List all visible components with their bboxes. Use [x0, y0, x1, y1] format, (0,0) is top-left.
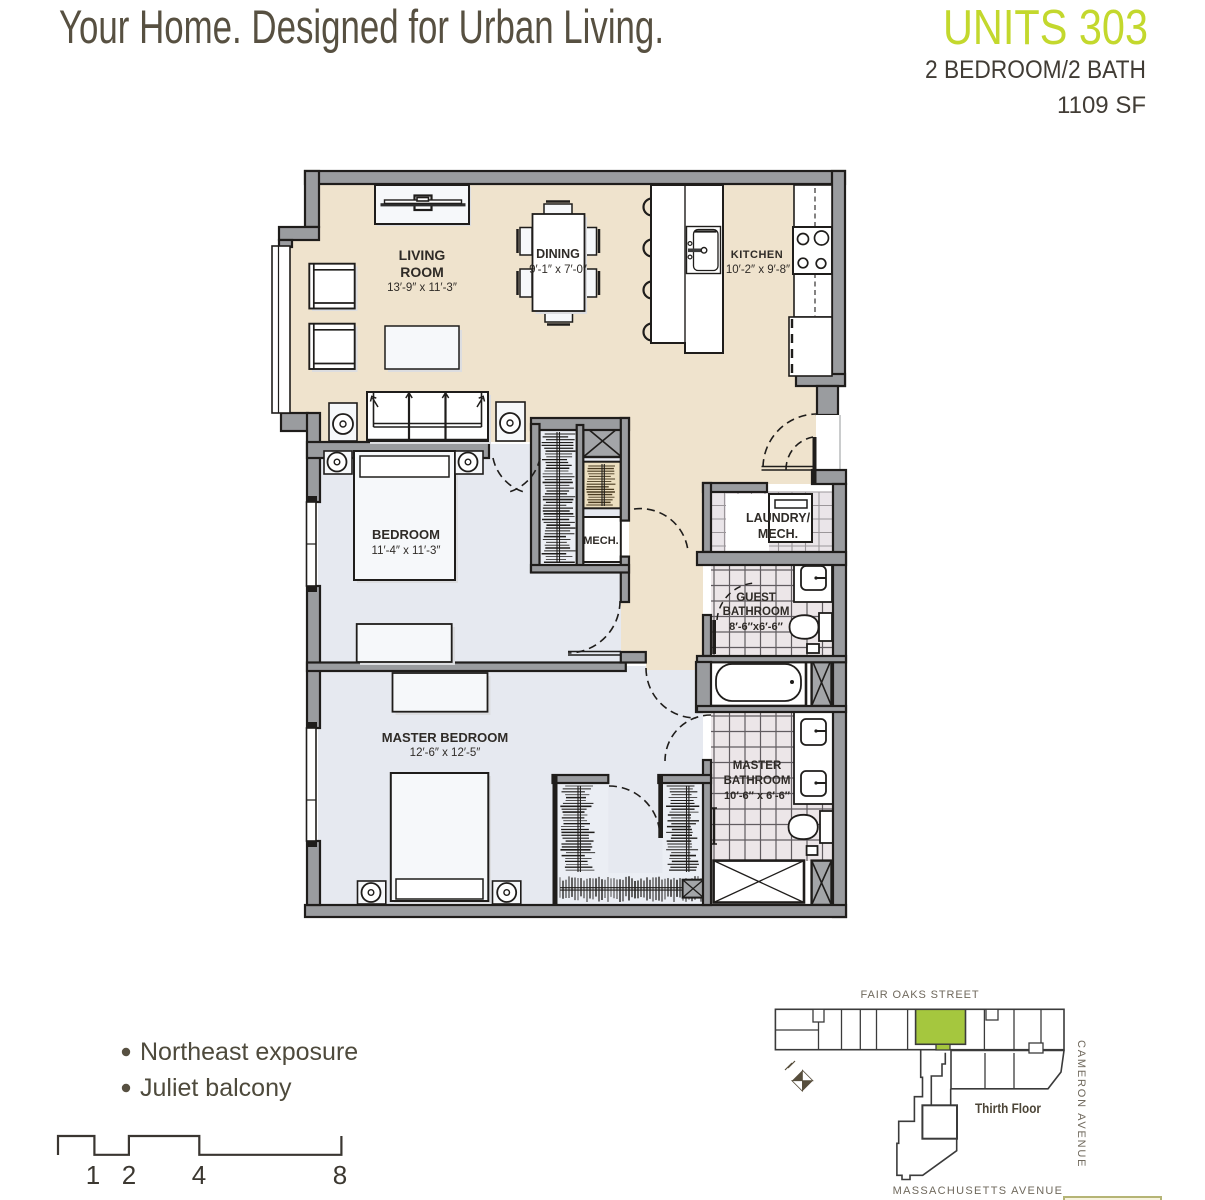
svg-text:12′-6″ x 12′-5″: 12′-6″ x 12′-5″: [410, 747, 481, 759]
svg-text:10′-6″ x 6′-6″: 10′-6″ x 6′-6″: [724, 790, 791, 802]
svg-text:MASTER: MASTER: [733, 760, 782, 772]
svg-text:8′-6″x6′-6″: 8′-6″x6′-6″: [729, 621, 783, 633]
svg-text:10′-2″ x 9′-8″: 10′-2″ x 9′-8″: [726, 264, 790, 276]
svg-text:Juliet balcony: Juliet balcony: [140, 1074, 292, 1102]
svg-text:LIVING: LIVING: [399, 247, 446, 263]
svg-text:BATHROOM: BATHROOM: [723, 606, 790, 618]
svg-text:MASTER BEDROOM: MASTER BEDROOM: [382, 730, 508, 745]
svg-text:BEDROOM: BEDROOM: [372, 527, 440, 542]
svg-text:MECH.: MECH.: [758, 527, 798, 541]
svg-text:MECH.: MECH.: [583, 535, 618, 547]
svg-text:FAIR OAKS STREET: FAIR OAKS STREET: [861, 989, 980, 1001]
svg-text:CAMERON AVENUE: CAMERON AVENUE: [1075, 1040, 1087, 1168]
svg-text:BATHROOM: BATHROOM: [724, 775, 791, 787]
svg-text:1109 SF: 1109 SF: [1057, 92, 1146, 119]
svg-text:DINING: DINING: [536, 247, 580, 261]
svg-text:ROOM: ROOM: [400, 264, 444, 280]
svg-text:Thirth Floor: Thirth Floor: [975, 1101, 1042, 1116]
svg-text:LAUNDRY/: LAUNDRY/: [746, 511, 811, 525]
svg-text:1: 1: [86, 1160, 100, 1190]
svg-text:4: 4: [192, 1160, 206, 1190]
svg-text:2 BEDROOM/2 BATH: 2 BEDROOM/2 BATH: [925, 56, 1146, 84]
svg-text:KITCHEN: KITCHEN: [731, 249, 783, 261]
svg-text:8: 8: [333, 1160, 347, 1190]
svg-text:13′-9″ x 11′-3″: 13′-9″ x 11′-3″: [387, 282, 457, 294]
svg-text:MASSACHUSETTS AVENUE: MASSACHUSETTS AVENUE: [893, 1185, 1064, 1197]
svg-text:Your Home. Designed for Urban: Your Home. Designed for Urban Living.: [59, 0, 664, 53]
svg-text:2: 2: [122, 1160, 136, 1190]
svg-text:9′-1″ x 7′-0″: 9′-1″ x 7′-0″: [529, 264, 587, 276]
svg-text:UNITS 303: UNITS 303: [943, 1, 1148, 55]
svg-text:Northeast exposure: Northeast exposure: [140, 1038, 358, 1066]
svg-text:GUEST: GUEST: [736, 592, 776, 604]
svg-text:11′-4″ x 11′-3″: 11′-4″ x 11′-3″: [372, 545, 441, 557]
